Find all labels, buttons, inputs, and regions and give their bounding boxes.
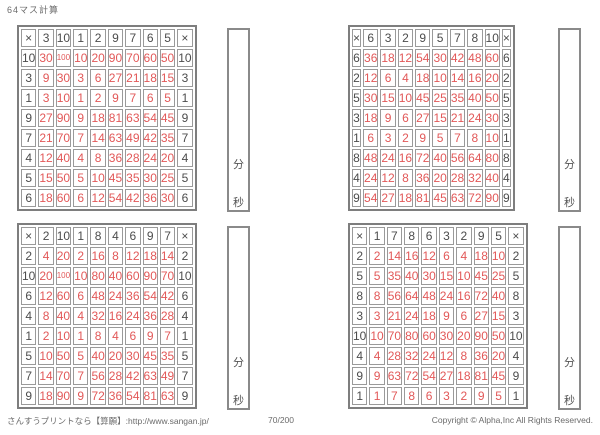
answer-cell: 30: [439, 327, 454, 345]
answer-cell: 60: [485, 49, 500, 67]
answer-cell: 50: [160, 49, 175, 67]
answer-cell: 8: [456, 347, 471, 365]
col-header-cell: 4: [108, 227, 123, 245]
answer-cell: 63: [125, 109, 140, 127]
answer-cell: 12: [363, 69, 378, 87]
answer-cell: 90: [143, 267, 158, 285]
answer-cell: 14: [387, 247, 402, 265]
answer-cell: 40: [90, 347, 105, 365]
row-header-cell: 10: [352, 327, 367, 345]
col-header-cell: 9: [108, 29, 123, 47]
answer-cell: 10: [56, 327, 71, 345]
answer-cell: 1: [73, 89, 88, 107]
answer-cell: 10: [398, 89, 413, 107]
answer-cell: 45: [108, 169, 123, 187]
multiplication-grid: ×210184697×24202168121814210201001080406…: [17, 223, 197, 409]
answer-cell: 36: [108, 387, 123, 405]
answer-cell: 54: [363, 189, 378, 207]
answer-cell: 12: [38, 287, 53, 305]
answer-cell: 45: [432, 189, 447, 207]
answer-cell: 8: [38, 307, 53, 325]
answer-cell: 63: [387, 367, 402, 385]
answer-cell: 14: [38, 367, 53, 385]
operator-cell: ×: [508, 227, 523, 245]
answer-cell: 21: [38, 129, 53, 147]
answer-cell: 64: [404, 287, 419, 305]
row-header-cell: 1: [352, 129, 361, 147]
answer-cell: 40: [467, 89, 482, 107]
answer-cell: 2: [456, 387, 471, 405]
answer-cell: 70: [125, 49, 140, 67]
answer-cell: 2: [90, 89, 105, 107]
row-header-cell: 9: [508, 367, 523, 385]
answer-cell: 20: [90, 49, 105, 67]
answer-cell: 45: [160, 109, 175, 127]
answer-cell: 81: [108, 109, 123, 127]
minutes-label: 分: [229, 354, 248, 370]
answer-cell: 20: [108, 347, 123, 365]
answer-cell: 12: [398, 49, 413, 67]
answer-cell: 9: [143, 327, 158, 345]
answer-cell: 27: [474, 307, 489, 325]
answer-cell: 27: [38, 109, 53, 127]
row-header-cell: 10: [21, 49, 36, 67]
answer-cell: 20: [56, 247, 71, 265]
row-header-cell: 5: [177, 169, 192, 187]
answer-cell: 12: [380, 169, 395, 187]
answer-cell: 54: [415, 49, 430, 67]
answer-cell: 63: [450, 189, 465, 207]
answer-cell: 48: [421, 287, 436, 305]
answer-cell: 100: [56, 267, 71, 285]
col-header-cell: 7: [125, 29, 140, 47]
answer-cell: 63: [160, 387, 175, 405]
answer-cell: 6: [90, 69, 105, 87]
answer-cell: 40: [485, 169, 500, 187]
answer-cell: 35: [387, 267, 402, 285]
answer-cell: 4: [398, 69, 413, 87]
answer-cell: 6: [143, 89, 158, 107]
row-header-cell: 4: [177, 149, 192, 167]
col-header-cell: 7: [450, 29, 465, 47]
answer-cell: 9: [415, 129, 430, 147]
col-header-cell: 1: [73, 227, 88, 245]
row-header-cell: 4: [352, 169, 361, 187]
answer-cell: 60: [143, 49, 158, 67]
page-title: 64マス計算: [7, 3, 59, 16]
answer-cell: 5: [73, 169, 88, 187]
answer-cell: 40: [56, 149, 71, 167]
answer-cell: 32: [90, 307, 105, 325]
col-header-cell: 9: [415, 29, 430, 47]
answer-cell: 45: [143, 347, 158, 365]
row-header-cell: 9: [352, 367, 367, 385]
answer-cell: 28: [387, 347, 402, 365]
answer-cell: 18: [380, 49, 395, 67]
answer-cell: 24: [380, 149, 395, 167]
row-header-cell: 5: [21, 347, 36, 365]
answer-cell: 1: [73, 327, 88, 345]
answer-cell: 56: [90, 367, 105, 385]
answer-cell: 28: [160, 307, 175, 325]
answer-cell: 42: [125, 189, 140, 207]
row-header-cell: 8: [508, 287, 523, 305]
row-header-cell: 1: [502, 129, 511, 147]
time-box: 分 秒: [227, 28, 250, 212]
answer-cell: 56: [387, 287, 402, 305]
answer-cell: 2: [38, 327, 53, 345]
answer-cell: 14: [450, 69, 465, 87]
answer-cell: 54: [108, 189, 123, 207]
row-header-cell: 3: [508, 307, 523, 325]
answer-cell: 60: [125, 267, 140, 285]
answer-cell: 54: [143, 109, 158, 127]
answer-cell: 72: [415, 149, 430, 167]
answer-cell: 42: [143, 129, 158, 147]
answer-cell: 5: [369, 267, 384, 285]
answer-cell: 15: [432, 109, 447, 127]
answer-cell: 30: [160, 189, 175, 207]
row-header-cell: 4: [21, 149, 36, 167]
answer-cell: 28: [450, 169, 465, 187]
answer-cell: 3: [73, 69, 88, 87]
answer-cell: 36: [125, 287, 140, 305]
answer-cell: 50: [56, 169, 71, 187]
row-header-cell: 2: [352, 69, 361, 87]
answer-cell: 70: [56, 129, 71, 147]
answer-cell: 35: [160, 129, 175, 147]
answer-cell: 20: [38, 267, 53, 285]
answer-cell: 8: [108, 247, 123, 265]
answer-cell: 90: [56, 387, 71, 405]
answer-cell: 2: [398, 129, 413, 147]
answer-cell: 60: [421, 327, 436, 345]
col-header-cell: 2: [398, 29, 413, 47]
answer-cell: 36: [415, 169, 430, 187]
answer-cell: 40: [56, 307, 71, 325]
answer-cell: 3: [369, 307, 384, 325]
answer-cell: 70: [387, 327, 402, 345]
row-header-cell: 9: [21, 387, 36, 405]
answer-cell: 35: [160, 347, 175, 365]
answer-cell: 8: [467, 129, 482, 147]
answer-cell: 7: [73, 129, 88, 147]
answer-cell: 10: [90, 169, 105, 187]
col-header-cell: 7: [387, 227, 402, 245]
answer-cell: 18: [143, 247, 158, 265]
row-header-cell: 1: [21, 89, 36, 107]
answer-cell: 40: [404, 267, 419, 285]
col-header-cell: 6: [125, 227, 140, 245]
answer-cell: 81: [143, 387, 158, 405]
operator-cell: ×: [177, 227, 192, 245]
answer-cell: 8: [369, 287, 384, 305]
answer-cell: 45: [415, 89, 430, 107]
minutes-label: 分: [560, 156, 579, 172]
time-box: 分 秒: [227, 226, 250, 410]
answer-cell: 16: [90, 247, 105, 265]
answer-cell: 9: [474, 387, 489, 405]
row-header-cell: 5: [508, 267, 523, 285]
answer-cell: 49: [125, 129, 140, 147]
row-header-cell: 4: [502, 169, 511, 187]
answer-cell: 24: [467, 109, 482, 127]
col-header-cell: 9: [143, 227, 158, 245]
answer-cell: 28: [125, 149, 140, 167]
answer-cell: 40: [432, 149, 447, 167]
row-header-cell: 4: [21, 307, 36, 325]
col-header-cell: 5: [432, 29, 447, 47]
col-header-cell: 3: [38, 29, 53, 47]
answer-cell: 20: [485, 69, 500, 87]
col-header-cell: 3: [439, 227, 454, 245]
row-header-cell: 6: [21, 189, 36, 207]
answer-cell: 24: [363, 169, 378, 187]
col-header-cell: 10: [56, 227, 71, 245]
answer-cell: 9: [73, 109, 88, 127]
col-header-cell: 2: [90, 29, 105, 47]
answer-cell: 54: [125, 387, 140, 405]
multiplication-grid: ×632957810×63618125430424860621264181014…: [348, 25, 515, 211]
row-header-cell: 1: [352, 387, 367, 405]
answer-cell: 8: [404, 387, 419, 405]
answer-cell: 27: [439, 367, 454, 385]
col-header-cell: 2: [456, 227, 471, 245]
answer-cell: 24: [143, 149, 158, 167]
answer-cell: 36: [474, 347, 489, 365]
answer-cell: 2: [369, 247, 384, 265]
answer-cell: 4: [108, 327, 123, 345]
answer-cell: 30: [38, 49, 53, 67]
answer-cell: 16: [404, 247, 419, 265]
row-header-cell: 4: [508, 347, 523, 365]
answer-cell: 35: [125, 169, 140, 187]
answer-cell: 32: [404, 347, 419, 365]
row-header-cell: 8: [352, 149, 361, 167]
col-header-cell: 3: [380, 29, 395, 47]
answer-cell: 12: [125, 247, 140, 265]
answer-cell: 20: [491, 347, 506, 365]
row-header-cell: 9: [21, 109, 36, 127]
answer-cell: 9: [38, 69, 53, 87]
answer-cell: 9: [439, 307, 454, 325]
answer-cell: 6: [421, 387, 436, 405]
answer-cell: 54: [143, 287, 158, 305]
answer-cell: 1: [369, 387, 384, 405]
answer-cell: 18: [143, 69, 158, 87]
answer-cell: 30: [56, 69, 71, 87]
answer-cell: 5: [160, 89, 175, 107]
row-header-cell: 1: [177, 89, 192, 107]
row-header-cell: 9: [177, 387, 192, 405]
answer-cell: 45: [474, 267, 489, 285]
answer-cell: 90: [485, 189, 500, 207]
answer-cell: 24: [108, 287, 123, 305]
answer-cell: 27: [380, 189, 395, 207]
grid-table: ×210184697×24202168121814210201001080406…: [19, 225, 195, 407]
col-header-cell: 6: [143, 29, 158, 47]
answer-cell: 18: [474, 247, 489, 265]
answer-cell: 18: [421, 307, 436, 325]
row-header-cell: 10: [508, 327, 523, 345]
footer-copyright: Copyright © Alpha,Inc All Rights Reserve…: [432, 415, 593, 425]
answer-cell: 20: [160, 149, 175, 167]
row-header-cell: 10: [21, 267, 36, 285]
answer-cell: 72: [467, 189, 482, 207]
answer-cell: 6: [73, 287, 88, 305]
answer-cell: 28: [108, 367, 123, 385]
answer-cell: 25: [160, 169, 175, 187]
row-header-cell: 4: [177, 307, 192, 325]
grid-table: ×632957810×63618125430424860621264181014…: [350, 27, 513, 209]
answer-cell: 24: [404, 307, 419, 325]
row-header-cell: 5: [352, 89, 361, 107]
answer-cell: 15: [38, 169, 53, 187]
answer-cell: 30: [432, 49, 447, 67]
row-header-cell: 3: [177, 69, 192, 87]
answer-cell: 42: [125, 367, 140, 385]
answer-cell: 25: [491, 267, 506, 285]
row-header-cell: 7: [177, 129, 192, 147]
answer-cell: 10: [38, 347, 53, 365]
answer-cell: 90: [56, 109, 71, 127]
row-header-cell: 6: [177, 189, 192, 207]
answer-cell: 5: [491, 387, 506, 405]
answer-cell: 50: [56, 347, 71, 365]
row-header-cell: 6: [502, 49, 511, 67]
row-header-cell: 9: [352, 189, 361, 207]
answer-cell: 5: [73, 347, 88, 365]
answer-cell: 45: [491, 367, 506, 385]
row-header-cell: 5: [177, 347, 192, 365]
answer-cell: 80: [485, 149, 500, 167]
answer-cell: 6: [398, 109, 413, 127]
answer-cell: 70: [160, 267, 175, 285]
answer-cell: 12: [439, 347, 454, 365]
answer-cell: 100: [56, 49, 71, 67]
col-header-cell: 10: [485, 29, 500, 47]
footer: さんすうプリントなら【算願】:http://www.sangan.jp/ 70/…: [0, 415, 600, 429]
time-box: 分 秒: [558, 28, 581, 212]
answer-cell: 12: [90, 189, 105, 207]
operator-cell: ×: [352, 29, 361, 47]
answer-cell: 12: [38, 149, 53, 167]
answer-cell: 3: [439, 387, 454, 405]
col-header-cell: 5: [491, 227, 506, 245]
answer-cell: 36: [363, 49, 378, 67]
answer-cell: 18: [398, 189, 413, 207]
answer-cell: 8: [90, 149, 105, 167]
answer-cell: 10: [56, 89, 71, 107]
answer-cell: 10: [485, 129, 500, 147]
row-header-cell: 3: [352, 109, 361, 127]
answer-cell: 6: [380, 69, 395, 87]
row-header-cell: 7: [21, 367, 36, 385]
answer-cell: 21: [450, 109, 465, 127]
answer-cell: 35: [450, 89, 465, 107]
row-header-cell: 8: [352, 287, 367, 305]
answer-cell: 42: [160, 287, 175, 305]
answer-cell: 4: [38, 247, 53, 265]
answer-cell: 24: [439, 287, 454, 305]
answer-cell: 72: [90, 387, 105, 405]
answer-cell: 81: [415, 189, 430, 207]
row-header-cell: 2: [177, 247, 192, 265]
answer-cell: 30: [421, 267, 436, 285]
col-header-cell: 10: [56, 29, 71, 47]
answer-cell: 36: [143, 307, 158, 325]
answer-cell: 21: [387, 307, 402, 325]
answer-cell: 27: [108, 69, 123, 87]
answer-cell: 25: [432, 89, 447, 107]
answer-cell: 4: [456, 247, 471, 265]
seconds-label: 秒: [560, 392, 579, 408]
answer-cell: 2: [73, 247, 88, 265]
row-header-cell: 2: [21, 247, 36, 265]
answer-cell: 7: [125, 89, 140, 107]
answer-cell: 6: [456, 307, 471, 325]
answer-cell: 21: [125, 69, 140, 87]
answer-cell: 40: [491, 287, 506, 305]
row-header-cell: 6: [21, 287, 36, 305]
answer-cell: 56: [450, 149, 465, 167]
row-header-cell: 5: [21, 169, 36, 187]
answer-cell: 10: [491, 247, 506, 265]
answer-cell: 18: [90, 109, 105, 127]
answer-cell: 16: [456, 287, 471, 305]
answer-cell: 15: [439, 267, 454, 285]
grid-table: ×17863295×221416126418102553540301510452…: [350, 225, 526, 407]
answer-cell: 50: [491, 327, 506, 345]
minutes-label: 分: [229, 156, 248, 172]
answer-cell: 63: [143, 367, 158, 385]
answer-cell: 5: [432, 129, 447, 147]
answer-cell: 72: [404, 367, 419, 385]
row-header-cell: 1: [21, 327, 36, 345]
answer-cell: 80: [404, 327, 419, 345]
answer-cell: 80: [90, 267, 105, 285]
answer-cell: 49: [160, 367, 175, 385]
answer-cell: 18: [363, 109, 378, 127]
answer-cell: 50: [485, 89, 500, 107]
answer-cell: 24: [421, 347, 436, 365]
col-header-cell: 6: [421, 227, 436, 245]
answer-cell: 40: [108, 267, 123, 285]
answer-cell: 90: [474, 327, 489, 345]
answer-cell: 6: [439, 247, 454, 265]
answer-cell: 20: [432, 169, 447, 187]
answer-cell: 30: [485, 109, 500, 127]
col-header-cell: 8: [467, 29, 482, 47]
answer-cell: 24: [125, 307, 140, 325]
row-header-cell: 4: [352, 347, 367, 365]
answer-cell: 42: [450, 49, 465, 67]
answer-cell: 4: [73, 307, 88, 325]
answer-cell: 16: [398, 149, 413, 167]
answer-cell: 70: [56, 367, 71, 385]
row-header-cell: 9: [177, 109, 192, 127]
operator-cell: ×: [502, 29, 511, 47]
row-header-cell: 7: [21, 129, 36, 147]
answer-cell: 7: [450, 129, 465, 147]
time-box: 分 秒: [558, 226, 581, 410]
answer-cell: 14: [90, 129, 105, 147]
answer-cell: 48: [467, 49, 482, 67]
answer-cell: 3: [38, 89, 53, 107]
answer-cell: 10: [456, 267, 471, 285]
answer-cell: 15: [491, 307, 506, 325]
seconds-label: 秒: [229, 194, 248, 210]
